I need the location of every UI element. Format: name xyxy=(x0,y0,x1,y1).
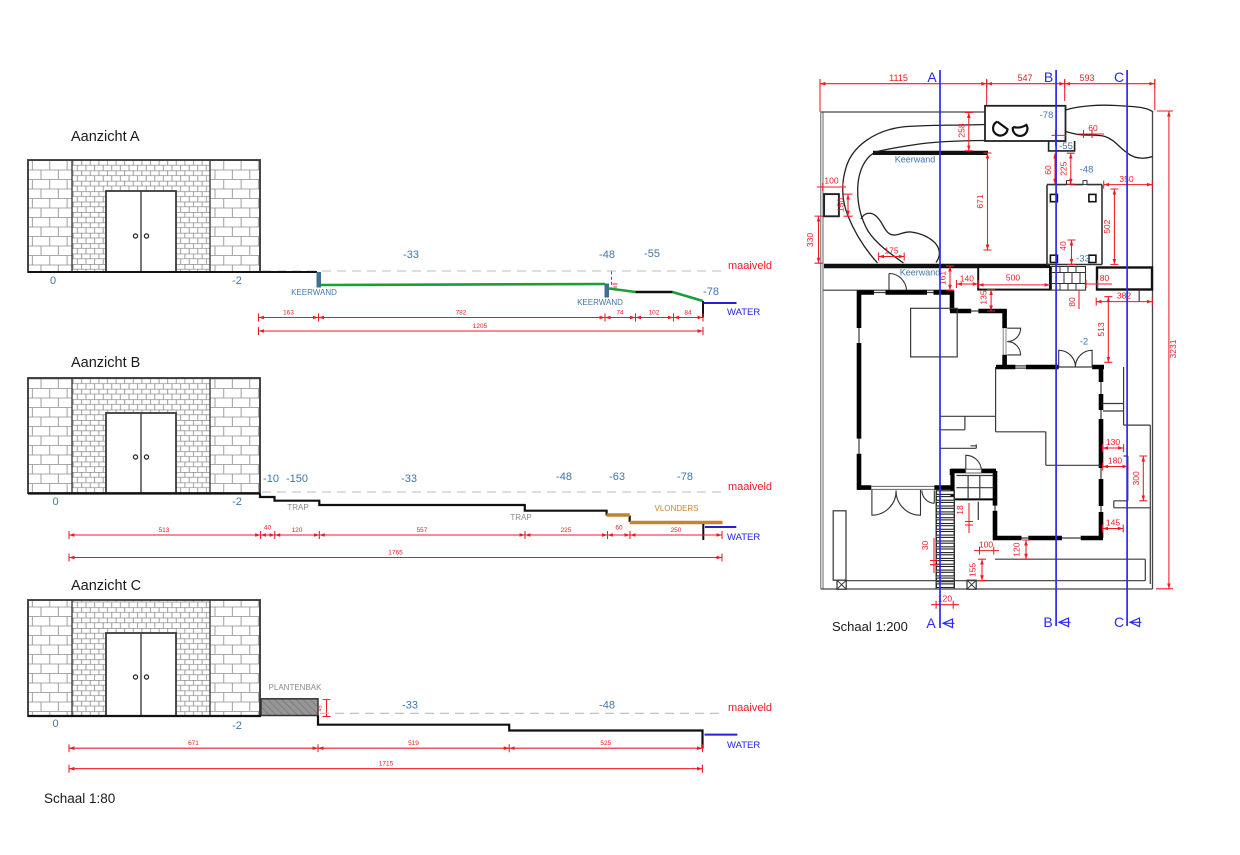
svg-text:547: 547 xyxy=(1017,73,1032,83)
svg-text:330: 330 xyxy=(805,233,815,247)
svg-text:C: C xyxy=(1114,69,1124,85)
svg-text:502: 502 xyxy=(1102,219,1112,233)
svg-text:40: 40 xyxy=(264,525,272,532)
svg-text:Schaal 1:80: Schaal 1:80 xyxy=(44,791,115,806)
svg-text:Aanzicht B: Aanzicht B xyxy=(71,355,140,371)
svg-text:KEERWAND: KEERWAND xyxy=(577,298,623,307)
svg-text:-33: -33 xyxy=(403,249,419,261)
svg-text:A: A xyxy=(927,69,937,85)
svg-text:100: 100 xyxy=(979,540,993,550)
svg-text:-55: -55 xyxy=(1059,141,1073,152)
svg-text:Keerwand: Keerwand xyxy=(900,268,941,278)
svg-text:175: 175 xyxy=(884,246,898,256)
svg-text:1715: 1715 xyxy=(379,761,394,768)
svg-text:300: 300 xyxy=(1131,471,1141,485)
svg-text:Schaal 1:200: Schaal 1:200 xyxy=(832,619,908,634)
svg-text:1115: 1115 xyxy=(889,73,908,83)
svg-text:PLANTENBAK: PLANTENBAK xyxy=(269,683,323,692)
svg-text:-33: -33 xyxy=(401,473,417,485)
svg-text:3231: 3231 xyxy=(1168,339,1178,358)
svg-text:80: 80 xyxy=(1100,273,1110,283)
svg-text:161: 161 xyxy=(938,271,948,285)
svg-text:-2: -2 xyxy=(232,275,242,287)
svg-text:120: 120 xyxy=(292,527,303,534)
svg-text:B: B xyxy=(1044,69,1053,85)
svg-text:135: 135 xyxy=(979,290,989,304)
svg-text:1205: 1205 xyxy=(473,323,488,330)
svg-text:0: 0 xyxy=(52,718,58,730)
svg-text:150: 150 xyxy=(836,198,846,212)
svg-text:525: 525 xyxy=(600,740,611,747)
svg-text:45: 45 xyxy=(318,705,324,711)
svg-text:maaiveld: maaiveld xyxy=(728,260,772,272)
svg-text:-78: -78 xyxy=(1040,110,1054,121)
svg-text:-10: -10 xyxy=(263,473,279,485)
svg-text:WATER: WATER xyxy=(727,307,760,318)
svg-text:WATER: WATER xyxy=(727,740,760,751)
svg-text:0: 0 xyxy=(50,275,56,287)
svg-text:782: 782 xyxy=(456,310,467,317)
svg-text:60: 60 xyxy=(615,525,623,532)
svg-text:671: 671 xyxy=(188,740,199,747)
svg-text:593: 593 xyxy=(1079,73,1094,83)
svg-text:671: 671 xyxy=(975,194,985,208)
svg-text:557: 557 xyxy=(417,527,428,534)
svg-text:C: C xyxy=(1114,614,1124,630)
svg-text:VLONDERS: VLONDERS xyxy=(654,504,698,513)
svg-text:TRAP: TRAP xyxy=(287,503,308,512)
svg-text:250: 250 xyxy=(671,527,682,534)
svg-text:74: 74 xyxy=(616,310,624,317)
svg-text:120: 120 xyxy=(1012,542,1022,556)
svg-text:A: A xyxy=(926,615,936,631)
svg-text:500: 500 xyxy=(1006,273,1020,283)
svg-text:155: 155 xyxy=(968,563,978,577)
svg-text:30: 30 xyxy=(920,541,930,551)
svg-text:Aanzicht C: Aanzicht C xyxy=(71,578,141,594)
svg-text:B: B xyxy=(1043,614,1052,630)
svg-text:513: 513 xyxy=(1096,322,1106,336)
svg-text:-48: -48 xyxy=(599,700,615,712)
svg-text:-33: -33 xyxy=(402,700,418,712)
svg-text:-2: -2 xyxy=(232,720,242,732)
svg-text:102: 102 xyxy=(649,310,660,317)
svg-text:maaiveld: maaiveld xyxy=(728,481,772,493)
svg-text:maaiveld: maaiveld xyxy=(728,702,772,714)
svg-text:-48: -48 xyxy=(556,471,572,483)
svg-text:-2: -2 xyxy=(1080,337,1088,348)
svg-text:180: 180 xyxy=(1108,456,1122,466)
svg-text:258: 258 xyxy=(957,123,967,137)
svg-text:-78: -78 xyxy=(703,286,719,298)
svg-text:-55: -55 xyxy=(644,248,660,260)
svg-text:60: 60 xyxy=(1088,123,1098,133)
svg-text:225: 225 xyxy=(1058,161,1068,175)
svg-text:-33: -33 xyxy=(1076,254,1090,265)
svg-text:140: 140 xyxy=(960,273,974,283)
svg-text:80: 80 xyxy=(1067,297,1077,307)
svg-text:-48: -48 xyxy=(1080,165,1094,176)
svg-text:-2: -2 xyxy=(232,496,242,508)
svg-text:-63: -63 xyxy=(609,471,625,483)
svg-text:100: 100 xyxy=(824,176,838,186)
svg-text:225: 225 xyxy=(561,527,572,534)
svg-text:-48: -48 xyxy=(599,249,615,261)
svg-text:TRAP: TRAP xyxy=(510,513,531,522)
svg-text:Aanzicht A: Aanzicht A xyxy=(71,129,140,145)
svg-text:145: 145 xyxy=(1106,518,1120,528)
svg-text:-78: -78 xyxy=(677,471,693,483)
svg-text:84: 84 xyxy=(684,310,692,317)
svg-text:40: 40 xyxy=(1058,241,1068,251)
svg-text:0: 0 xyxy=(52,496,58,508)
svg-text:130: 130 xyxy=(1106,437,1120,447)
svg-text:513: 513 xyxy=(159,527,170,534)
svg-text:519: 519 xyxy=(408,740,419,747)
svg-text:KEERWAND: KEERWAND xyxy=(291,288,337,297)
svg-text:382: 382 xyxy=(1117,291,1131,301)
svg-text:1765: 1765 xyxy=(388,550,403,557)
svg-text:WATER: WATER xyxy=(727,532,760,543)
svg-text:-150: -150 xyxy=(286,473,308,485)
svg-text:60: 60 xyxy=(1043,165,1053,175)
svg-text:Keerwand: Keerwand xyxy=(895,155,936,165)
svg-text:163: 163 xyxy=(283,310,294,317)
svg-text:18: 18 xyxy=(955,505,965,515)
